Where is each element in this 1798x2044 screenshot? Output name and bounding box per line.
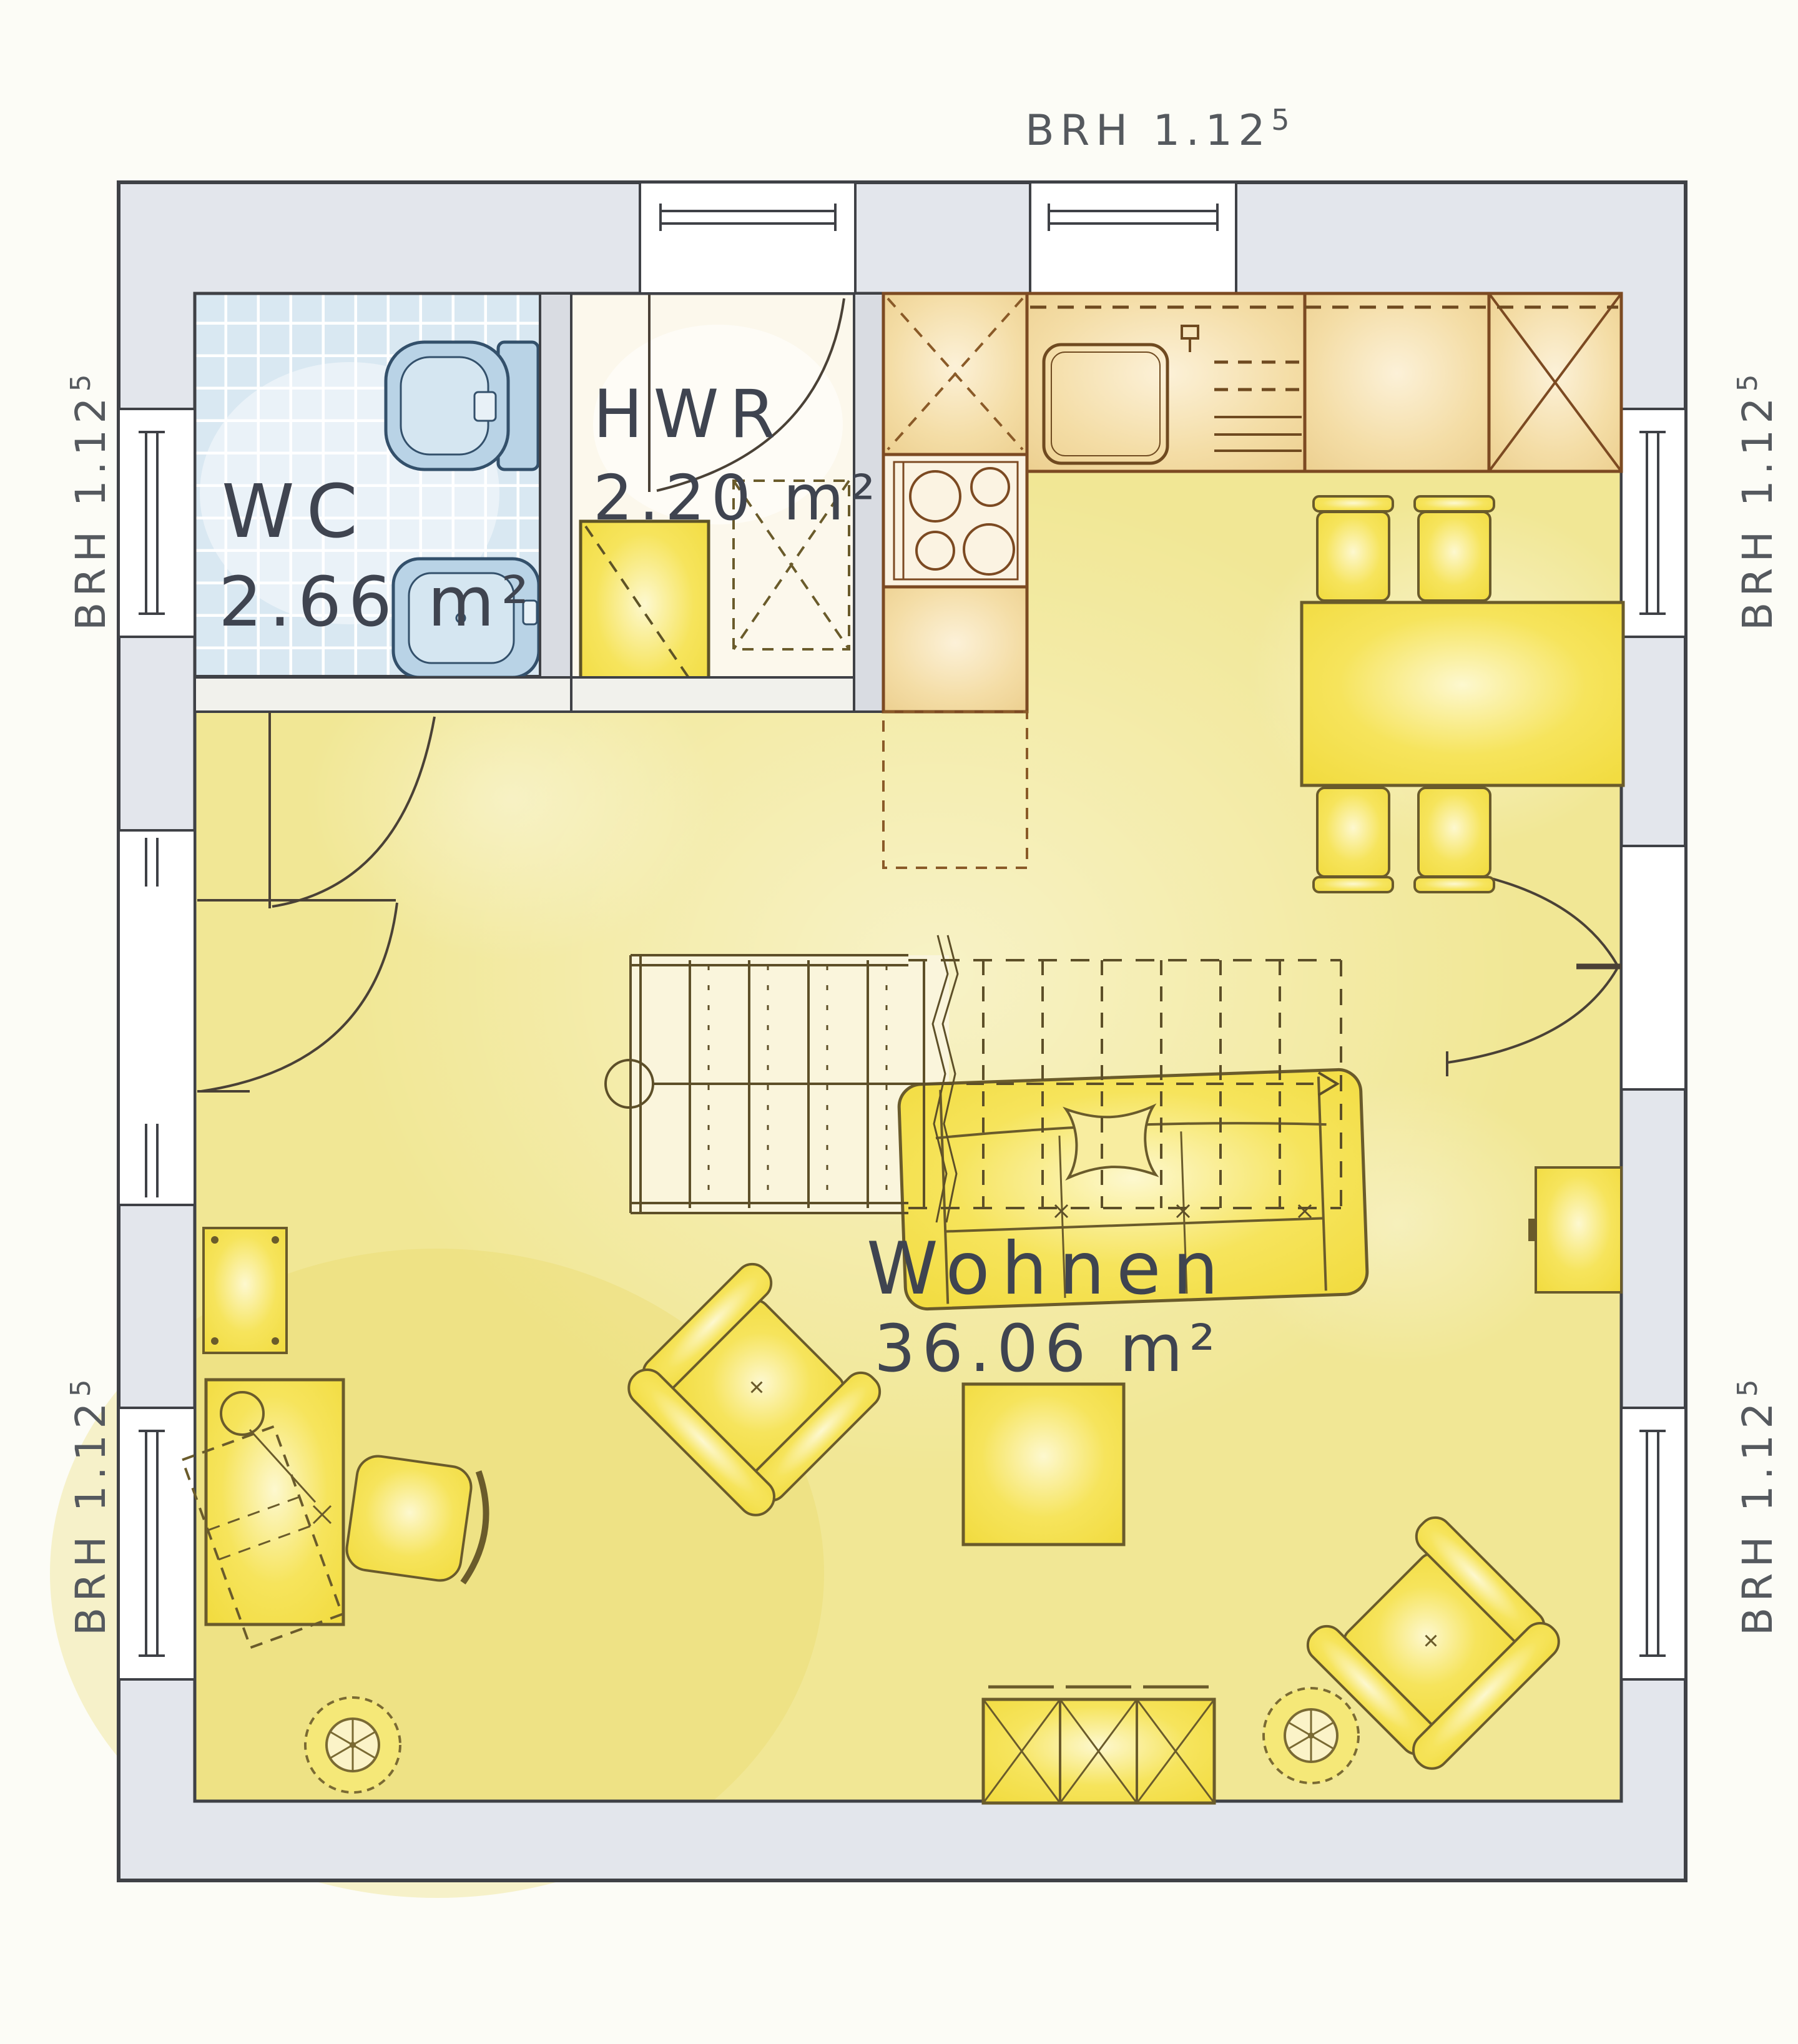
sideboard [983,1687,1214,1803]
room-label-wohnen: Wohnen [867,1227,1230,1311]
dining-table [1302,602,1623,785]
brh-annotation-left-bottom: BRH 1.125 [65,1373,115,1636]
brh-annotation-right-top: BRH 1.125 [1732,368,1782,631]
sink-counter [1027,293,1305,471]
room-label-hwr: HWR [593,376,786,453]
room-area-wc: 2.66 m² [219,562,536,642]
sofa-pillow [1066,1106,1156,1178]
toilet-symbol [386,342,538,469]
right-window-bottom [1621,1408,1686,1679]
room-area-wohnen: 36.06 m² [874,1310,1222,1387]
stove-symbol [883,454,1027,587]
counter-cabinet [1305,293,1489,471]
coffee-table [963,1384,1124,1545]
right-window-top [1621,409,1686,637]
fridge-cabinet [1489,293,1621,471]
room-label-wc: WC [222,468,370,554]
left-window-top [119,409,195,637]
brh-annotation-left-top: BRH 1.125 [65,368,115,631]
brh-annotation-top: BRH 1.125 [1025,103,1295,155]
desk [206,1380,343,1624]
kitchen-window [1030,182,1236,293]
plant-symbol [305,1698,400,1792]
wall-cabinet [1528,1167,1621,1292]
tall-cabinet [883,293,1027,454]
side-table [204,1228,287,1353]
dining-chair [1314,496,1393,601]
dining-chair [1314,788,1393,892]
dining-chair [1415,788,1494,892]
left-window-bottom [119,1408,195,1679]
room-area-hwr: 2.20 m² [593,461,882,534]
floor-plan-drawing: WC 2.66 m² HWR 2.20 m² Wohnen 36.06 m² B… [0,0,1798,2044]
plant-symbol [1264,1688,1358,1783]
floor-plan-page: WC 2.66 m² HWR 2.20 m² Wohnen 36.06 m² B… [0,0,1798,2044]
brh-annotation-right-bottom: BRH 1.125 [1732,1373,1782,1636]
base-cabinet [883,587,1027,712]
dining-chair [1415,496,1494,601]
